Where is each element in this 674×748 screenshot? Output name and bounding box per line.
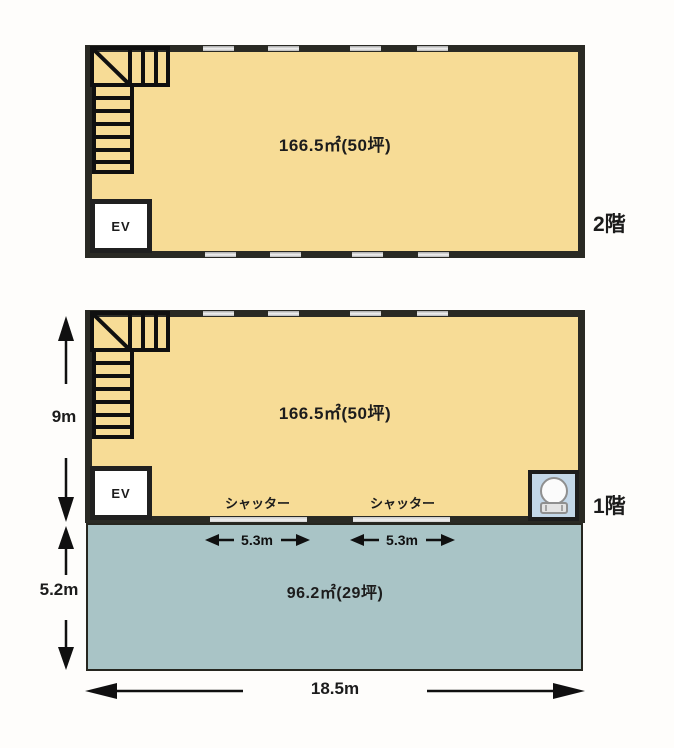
window bbox=[417, 311, 448, 316]
window bbox=[350, 311, 381, 316]
window bbox=[205, 252, 236, 257]
window bbox=[203, 311, 234, 316]
dimension-label-5-2m: 5.2m bbox=[24, 580, 94, 600]
window bbox=[268, 46, 299, 51]
window bbox=[418, 252, 449, 257]
toilet-box bbox=[528, 470, 579, 521]
dimension-label-9m: 9m bbox=[38, 407, 90, 427]
shutter-opening bbox=[353, 517, 450, 522]
window bbox=[350, 46, 381, 51]
window bbox=[268, 311, 299, 316]
dimension-arrow-shutter-2: 5.3m bbox=[350, 530, 455, 550]
window bbox=[203, 46, 234, 51]
toilet-icon bbox=[534, 475, 574, 517]
window bbox=[270, 252, 301, 257]
floor-tag-2f: 2階 bbox=[593, 208, 626, 238]
dimension-label-shutter-2: 5.3m bbox=[386, 532, 418, 548]
elevator-label: EV bbox=[111, 219, 130, 234]
dimension-arrow-shutter-1: 5.3m bbox=[205, 530, 310, 550]
elevator-box: EV bbox=[90, 466, 152, 520]
shutter-label: シャッター bbox=[350, 493, 455, 512]
elevator-label: EV bbox=[111, 486, 130, 501]
shutter-opening bbox=[210, 517, 307, 522]
area-label-1f: 166.5㎡(50坪) bbox=[85, 399, 585, 424]
area-label-ground: 96.2㎡(29坪) bbox=[85, 579, 585, 603]
window bbox=[352, 252, 383, 257]
area-label-2f: 166.5㎡(50坪) bbox=[85, 131, 585, 156]
floor-tag-1f: 1階 bbox=[593, 490, 626, 520]
shutter-label: シャッター bbox=[205, 493, 310, 512]
stairs-icon bbox=[88, 46, 174, 176]
elevator-box: EV bbox=[90, 199, 152, 253]
floorplan-canvas: EV 166.5㎡(50坪) 2階 EV 166.5㎡(50坪) シャッター シ… bbox=[0, 0, 674, 748]
dimension-label-18-5m: 18.5m bbox=[85, 679, 585, 699]
window bbox=[417, 46, 448, 51]
dimension-label-shutter-1: 5.3m bbox=[241, 532, 273, 548]
